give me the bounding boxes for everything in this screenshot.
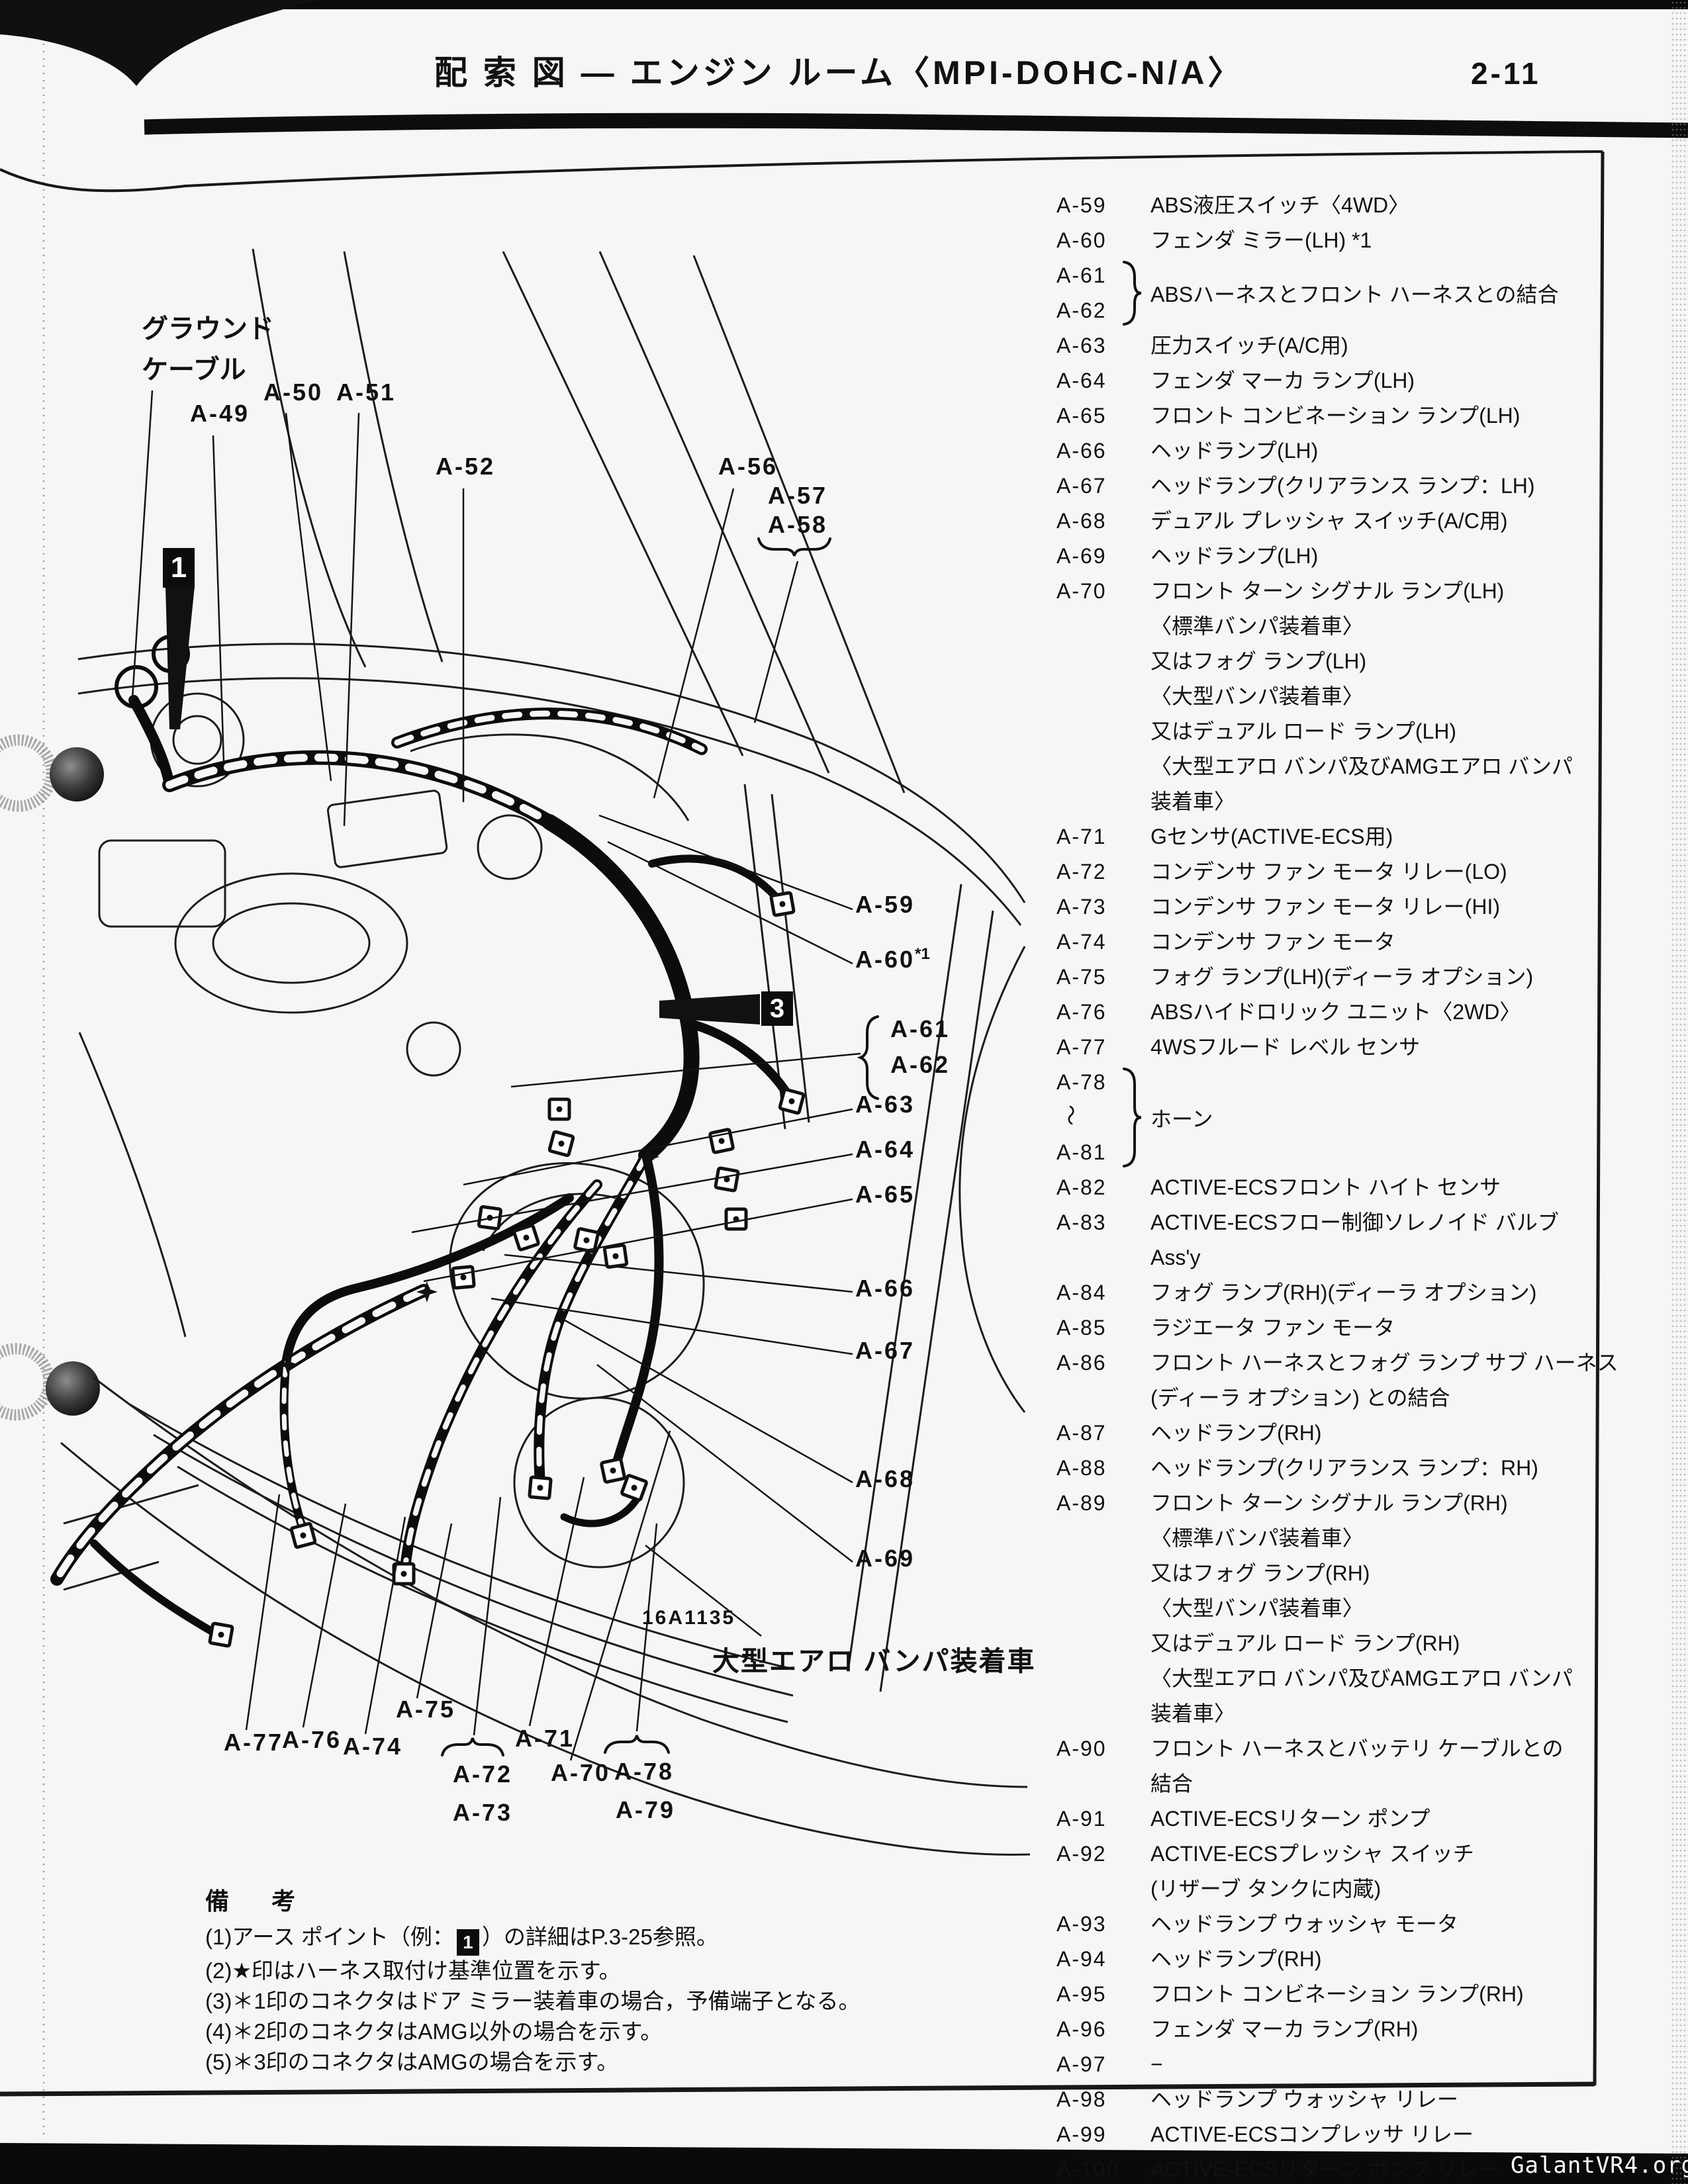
legend-row: A-93ヘッドランプ ウォッシャ モータ	[1056, 1907, 1606, 1942]
legend-list: A-59ABS液圧スイッチ〈4WD〉A-60フェンダ ミラー(LH) *1A-6…	[1056, 188, 1606, 2184]
legend-row: A-84フォグ ランプ(RH)(ディーラ オプション)	[1056, 1275, 1606, 1310]
legend-label: A-92	[1056, 1837, 1107, 1872]
legend-label: A-88	[1056, 1451, 1107, 1486]
legend-label: A-99	[1056, 2117, 1107, 2152]
legend-desc: ヘッドランプ(RH)	[1150, 1942, 1322, 1977]
notes-heading: 備 考	[205, 1886, 1079, 1917]
legend-row: A-60フェンダ ミラー(LH) *1	[1056, 223, 1606, 258]
legend-label: A-59	[1056, 188, 1107, 223]
legend-label: A-70	[1056, 574, 1107, 609]
legend-row: A-73コンデンサ ファン モータ リレー(HI)	[1056, 889, 1606, 925]
callout-a-50: A-50	[263, 379, 323, 406]
legend-brace	[1121, 1067, 1144, 1168]
legend-desc: ACTIVE-ECSフロント ハイト センサ	[1150, 1170, 1501, 1205]
variant-caption: 大型エアロ バンパ装着車	[712, 1639, 1035, 1678]
legend-label: A-87	[1056, 1416, 1107, 1451]
legend-row: A-86フロント ハーネスとフォグ ランプ サブ ハーネス (ディーラ オプショ…	[1056, 1345, 1606, 1416]
legend-desc: ヘッドランプ(LH)	[1150, 433, 1318, 469]
legend-label: A-91	[1056, 1801, 1107, 1837]
legend-desc: ACTIVE-ECSフロー制御ソレノイド バルブ Ass'y	[1150, 1205, 1559, 1275]
legend-group-labels: A-61A-62	[1056, 258, 1107, 328]
legend-row: A-96フェンダ マーカ ランプ(RH)	[1056, 2012, 1606, 2047]
legend-label: A-84	[1056, 1275, 1107, 1310]
legend-label: A-63	[1056, 328, 1107, 363]
legend-label: A-74	[1056, 925, 1107, 960]
legend-row: A-70フロント ターン シグナル ランプ(LH) 〈標準バンパ装着車〉 又はフ…	[1056, 574, 1606, 819]
callout-a-65: A-65	[855, 1181, 915, 1208]
legend-label: A-75	[1056, 960, 1107, 995]
callout-a-76: A-76	[282, 1726, 342, 1754]
notes-lines: (1)アース ポイント（例：1）の詳細はP.3-25参照。(2)★印はハーネス取…	[205, 1922, 1079, 2077]
legend-row: A-65フロント コンビネーション ランプ(LH)	[1056, 398, 1606, 433]
ground-cable-label-line2: ケーブル	[142, 349, 274, 390]
note-line: (5)＊3印のコネクタはAMGの場合を示す。	[205, 2047, 1079, 2077]
legend-desc: ヘッドランプ(クリアランス ランプ：RH)	[1150, 1451, 1538, 1486]
legend-label: A-89	[1056, 1486, 1107, 1521]
legend-row: A-69ヘッドランプ(LH)	[1056, 539, 1606, 574]
legend-row: A-87ヘッドランプ(RH)	[1056, 1416, 1606, 1451]
legend-label: A-67	[1056, 469, 1107, 504]
legend-desc: −	[1150, 2047, 1163, 2082]
callout-a-67: A-67	[855, 1337, 915, 1365]
legend-row: A-76ABSハイドロリック ユニット〈2WD〉	[1056, 995, 1606, 1030]
legend-label: A-76	[1056, 995, 1107, 1030]
legend-label: A-68	[1056, 504, 1107, 539]
legend-row: A-64フェンダ マーカ ランプ(LH)	[1056, 363, 1606, 398]
figure-code: 16A1135	[642, 1607, 735, 1629]
legend-desc: フロント ハーネスとバッテリ ケーブルとの 結合	[1150, 1731, 1564, 1801]
callout-a-70: A-70	[551, 1759, 610, 1787]
legend-label: A-77	[1056, 1030, 1107, 1065]
manual-page: 配 索 図 — エンジン ルーム〈MPI-DOHC-N/A〉 2-11 グラウン…	[0, 0, 1688, 2184]
notes: 備 考 (1)アース ポイント（例：1）の詳細はP.3-25参照。(2)★印はハ…	[205, 1886, 1079, 2077]
callout-a-72: A-72	[453, 1760, 512, 1788]
legend-desc: デュアル プレッシャ スイッチ(A/C用)	[1150, 504, 1507, 539]
legend-label: A-71	[1056, 819, 1107, 854]
callout-a-57: A-57	[768, 482, 827, 510]
legend-desc: フェンダ マーカ ランプ(RH)	[1150, 2012, 1418, 2047]
legend-row: A-59ABS液圧スイッチ〈4WD〉	[1056, 188, 1606, 223]
legend-row: A-94ヘッドランプ(RH)	[1056, 1942, 1606, 1977]
legend-group-row: A-61A-62ABSハーネスとフロント ハーネスとの結合	[1056, 258, 1606, 328]
legend-group-labels: A-78〜A-81	[1056, 1065, 1107, 1170]
legend-row: A-66ヘッドランプ(LH)	[1056, 433, 1606, 469]
callout-a-63: A-63	[855, 1091, 915, 1118]
legend-label: 〜	[1053, 1105, 1088, 1155]
note-line: (1)アース ポイント（例：1）の詳細はP.3-25参照。	[205, 1922, 1079, 1956]
callout-a-68: A-68	[855, 1465, 915, 1493]
legend-desc: ヘッドランプ(RH)	[1150, 1416, 1322, 1451]
legend-label: A-61	[1056, 258, 1107, 293]
legend-row: A-85ラジエータ ファン モータ	[1056, 1310, 1606, 1345]
legend-desc: ABSハーネスとフロント ハーネスとの結合	[1150, 258, 1559, 328]
legend-row: A-98ヘッドランプ ウォッシャ リレー	[1056, 2082, 1606, 2117]
legend-row: A-88ヘッドランプ(クリアランス ランプ：RH)	[1056, 1451, 1606, 1486]
binder-hole	[0, 740, 104, 1416]
legend-label: A-78	[1056, 1065, 1107, 1100]
callout-a-79: A-79	[616, 1796, 675, 1824]
legend-label: A-86	[1056, 1345, 1107, 1381]
legend-row: A-97−	[1056, 2047, 1606, 2082]
legend-desc: ACTIVE-ECSプレッシャ スイッチ (リザーブ タンクに内蔵)	[1150, 1837, 1474, 1907]
legend-row: A-92ACTIVE-ECSプレッシャ スイッチ (リザーブ タンクに内蔵)	[1056, 1837, 1606, 1907]
page-title: 配 索 図 — エンジン ルーム〈MPI-DOHC-N/A〉	[434, 46, 1244, 94]
legend-row: A-71Gセンサ(ACTIVE-ECS用)	[1056, 819, 1606, 854]
legend-label: A-64	[1056, 363, 1107, 398]
legend-desc: フロント ターン シグナル ランプ(RH) 〈標準バンパ装着車〉 又はフォグ ラ…	[1150, 1486, 1573, 1731]
legend-desc: フロント ハーネスとフォグ ランプ サブ ハーネス (ディーラ オプション) と…	[1150, 1345, 1618, 1416]
callout-a-74: A-74	[343, 1733, 402, 1760]
legend-row: A-67ヘッドランプ(クリアランス ランプ：LH)	[1056, 469, 1606, 504]
ground-point-marker: 1	[163, 548, 195, 588]
callout-a-49: A-49	[190, 400, 250, 428]
legend-label: A-60	[1056, 223, 1107, 258]
legend-label: A-90	[1056, 1731, 1107, 1766]
legend-desc: 4WSフルード レベル センサ	[1150, 1030, 1420, 1065]
callout-a-52: A-52	[436, 453, 495, 480]
legend-desc: ACTIVE-ECSコンプレッサ リレー	[1150, 2117, 1474, 2152]
callout-a-56: A-56	[718, 453, 778, 480]
car-body-lines	[61, 249, 1030, 1854]
callout-a-64: A-64	[855, 1136, 915, 1163]
legend-desc: ラジエータ ファン モータ	[1150, 1310, 1395, 1345]
legend-desc: ヘッドランプ ウォッシャ モータ	[1150, 1907, 1458, 1942]
callout-a-71: A-71	[515, 1725, 575, 1752]
legend-desc: ヘッドランプ(LH)	[1150, 539, 1318, 574]
legend-row: A-63圧力スイッチ(A/C用)	[1056, 328, 1606, 363]
legend-row: A-774WSフルード レベル センサ	[1056, 1030, 1606, 1065]
legend-row: A-99ACTIVE-ECSコンプレッサ リレー	[1056, 2117, 1606, 2152]
legend-desc: ホーン	[1150, 1065, 1213, 1170]
legend-label: A-69	[1056, 539, 1107, 574]
legend-desc: ABSハイドロリック ユニット〈2WD〉	[1150, 995, 1521, 1030]
callout-a-77: A-77	[224, 1729, 283, 1756]
legend-desc: コンデンサ ファン モータ リレー(HI)	[1150, 889, 1500, 925]
callout-a-60: A-60*1	[855, 945, 930, 974]
legend-label: A-66	[1056, 433, 1107, 469]
legend-row: A-82ACTIVE-ECSフロント ハイト センサ	[1056, 1170, 1606, 1205]
note-line: (4)＊2印のコネクタはAMG以外の場合を示す。	[205, 2017, 1079, 2047]
legend-desc: フェンダ ミラー(LH) *1	[1150, 223, 1372, 258]
callout-a-62: A-62	[890, 1051, 950, 1079]
legend-row: A-89フロント ターン シグナル ランプ(RH) 〈標準バンパ装着車〉 又はフ…	[1056, 1486, 1606, 1731]
legend-desc: コンデンサ ファン モータ リレー(LO)	[1150, 854, 1507, 889]
legend-label: A-82	[1056, 1170, 1107, 1205]
note-line: (2)★印はハーネス取付け基準位置を示す。	[205, 1956, 1079, 1986]
legend-desc: ABS液圧スイッチ〈4WD〉	[1150, 188, 1409, 223]
legend-row: A-90フロント ハーネスとバッテリ ケーブルとの 結合	[1056, 1731, 1606, 1801]
callout-footnote-mark: *1	[915, 945, 930, 963]
callout-a-58: A-58	[768, 511, 827, 539]
ground-cable-label-line1: グラウンド	[142, 308, 274, 349]
page-number: 2-11	[1471, 56, 1541, 91]
legend-desc: 圧力スイッチ(A/C用)	[1150, 328, 1348, 363]
legend-desc: ヘッドランプ ウォッシャ リレー	[1150, 2082, 1458, 2117]
wiring-harness	[57, 637, 790, 1636]
legend-desc: フォグ ランプ(RH)(ディーラ オプション)	[1150, 1275, 1536, 1310]
right-edge-noise	[1671, 0, 1688, 2184]
legend-row: A-74コンデンサ ファン モータ	[1056, 925, 1606, 960]
callout-a-59: A-59	[855, 891, 915, 919]
legend-label: A-65	[1056, 398, 1107, 433]
legend-label: A-73	[1056, 889, 1107, 925]
callout-a-73: A-73	[453, 1799, 512, 1827]
callout-a-69: A-69	[855, 1545, 915, 1572]
legend-desc: フロント ターン シグナル ランプ(LH) 〈標準バンパ装着車〉 又はフォグ ラ…	[1150, 574, 1573, 819]
legend-row: A-75フォグ ランプ(LH)(ディーラ オプション)	[1056, 960, 1606, 995]
legend-desc: コンデンサ ファン モータ	[1150, 925, 1395, 960]
legend-brace	[1121, 260, 1144, 326]
legend-row: A-83ACTIVE-ECSフロー制御ソレノイド バルブ Ass'y	[1056, 1205, 1606, 1275]
legend-desc: Gセンサ(ACTIVE-ECS用)	[1150, 819, 1393, 854]
header-rule	[144, 120, 1688, 130]
section-marker: 3	[761, 991, 793, 1026]
legend-desc: ACTIVE-ECSリターン ポンプ	[1150, 1801, 1430, 1837]
callout-a-61: A-61	[890, 1015, 950, 1043]
legend-desc: ヘッドランプ(クリアランス ランプ：LH)	[1150, 469, 1535, 504]
legend-row: A-91ACTIVE-ECSリターン ポンプ	[1056, 1801, 1606, 1837]
legend-row: A-72コンデンサ ファン モータ リレー(LO)	[1056, 854, 1606, 889]
legend-group-row: A-78〜A-81ホーン	[1056, 1065, 1606, 1170]
legend-row: A-68デュアル プレッシャ スイッチ(A/C用)	[1056, 504, 1606, 539]
callout-a-78: A-78	[614, 1758, 674, 1786]
legend-desc: フロント コンビネーション ランプ(RH)	[1150, 1977, 1524, 2012]
legend-desc: フロント コンビネーション ランプ(LH)	[1150, 398, 1520, 433]
callout-a-75: A-75	[396, 1696, 455, 1723]
legend-label: A-85	[1056, 1310, 1107, 1345]
legend-desc: フォグ ランプ(LH)(ディーラ オプション)	[1150, 960, 1533, 995]
legend-label: A-98	[1056, 2082, 1107, 2117]
note-line: (3)＊1印のコネクタはドア ミラー装着車の場合，予備端子となる。	[205, 1986, 1079, 2017]
legend-label: A-83	[1056, 1205, 1107, 1240]
legend-label: A-62	[1056, 293, 1107, 328]
callout-a-66: A-66	[855, 1275, 915, 1302]
legend-desc: フェンダ マーカ ランプ(LH)	[1150, 363, 1415, 398]
callout-a-51: A-51	[336, 379, 396, 406]
watermark: GalantVR4.org	[1511, 2152, 1688, 2179]
legend-row: A-95フロント コンビネーション ランプ(RH)	[1056, 1977, 1606, 2012]
ground-cable-label: グラウンド ケーブル	[142, 308, 274, 390]
legend-desc: ACTIVE-ECSリターン ポンプ リレー	[1150, 2152, 1499, 2184]
legend-label: A-100	[1056, 2152, 1119, 2184]
ground-point-example-box: 1	[457, 1929, 479, 1956]
legend-label: A-72	[1056, 854, 1107, 889]
